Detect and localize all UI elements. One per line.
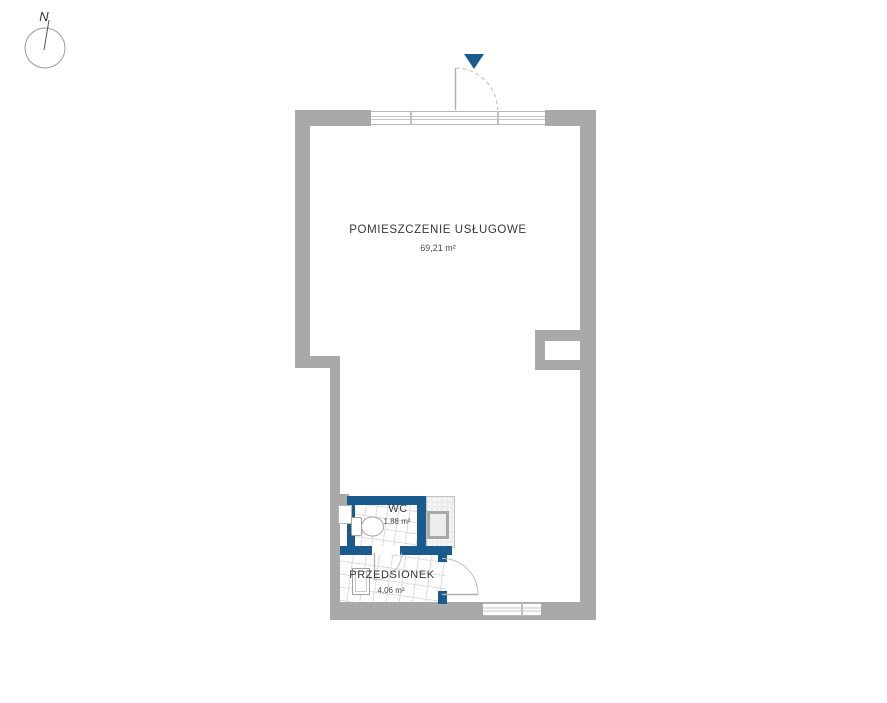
room-label-vestibule: PRZEDSIONEK [349,569,434,581]
room-label-wc: WC [388,503,408,515]
entrance-door [456,68,498,110]
toilet-icon [352,517,384,536]
room-area-vestibule: 4,06 m² [377,586,404,595]
plan-overlay: N [0,0,887,703]
vestibule-door [442,559,478,595]
room-label-main: POMIESZCZENIE USŁUGOWE [349,224,526,236]
compass-north-label: N [39,9,49,24]
entrance-arrow-icon [464,54,484,69]
north-compass-icon: N [25,9,65,68]
room-area-wc: 1,88 m² [383,517,410,526]
floor-plan-canvas: N POMIESZCZENIE USŁUGOWE 69,21 m² WC 1,8… [0,0,887,703]
room-area-main: 69,21 m² [420,243,456,253]
